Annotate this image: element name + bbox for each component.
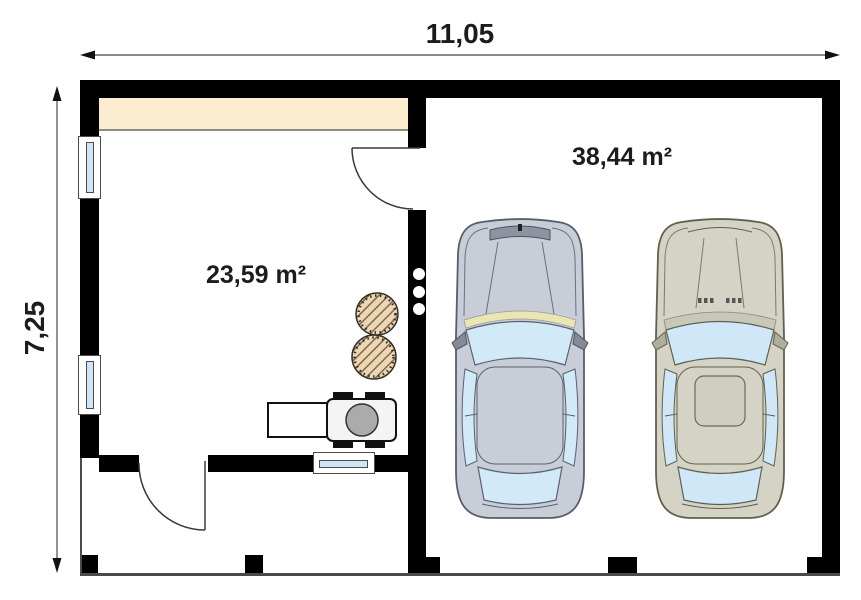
room-area-label: 23,59 m²	[176, 261, 336, 290]
stool-2	[352, 335, 396, 379]
dimension-arrow-height	[53, 86, 62, 573]
garage-area-label: 38,44 m²	[542, 143, 702, 172]
car-gray	[452, 219, 588, 518]
dimension-width-label: 11,05	[380, 18, 540, 50]
dimension-arrow-width	[80, 51, 840, 60]
grill-trolley	[268, 392, 396, 448]
dimension-height-label: 7,25	[21, 263, 49, 393]
grill-burner	[346, 404, 378, 436]
car-beige-sunroof	[695, 376, 745, 426]
car-gray-roof	[477, 367, 563, 464]
plan-overlay	[0, 0, 861, 600]
car-beige	[652, 219, 788, 518]
floor-plan: 11,05 7,25 23,59 m² 38,44 m²	[0, 0, 861, 600]
door-interior	[352, 148, 420, 209]
car-beige-windshield	[666, 322, 774, 366]
stool-1	[356, 293, 398, 335]
car-gray-windshield	[466, 322, 574, 366]
door-exterior	[139, 461, 205, 530]
